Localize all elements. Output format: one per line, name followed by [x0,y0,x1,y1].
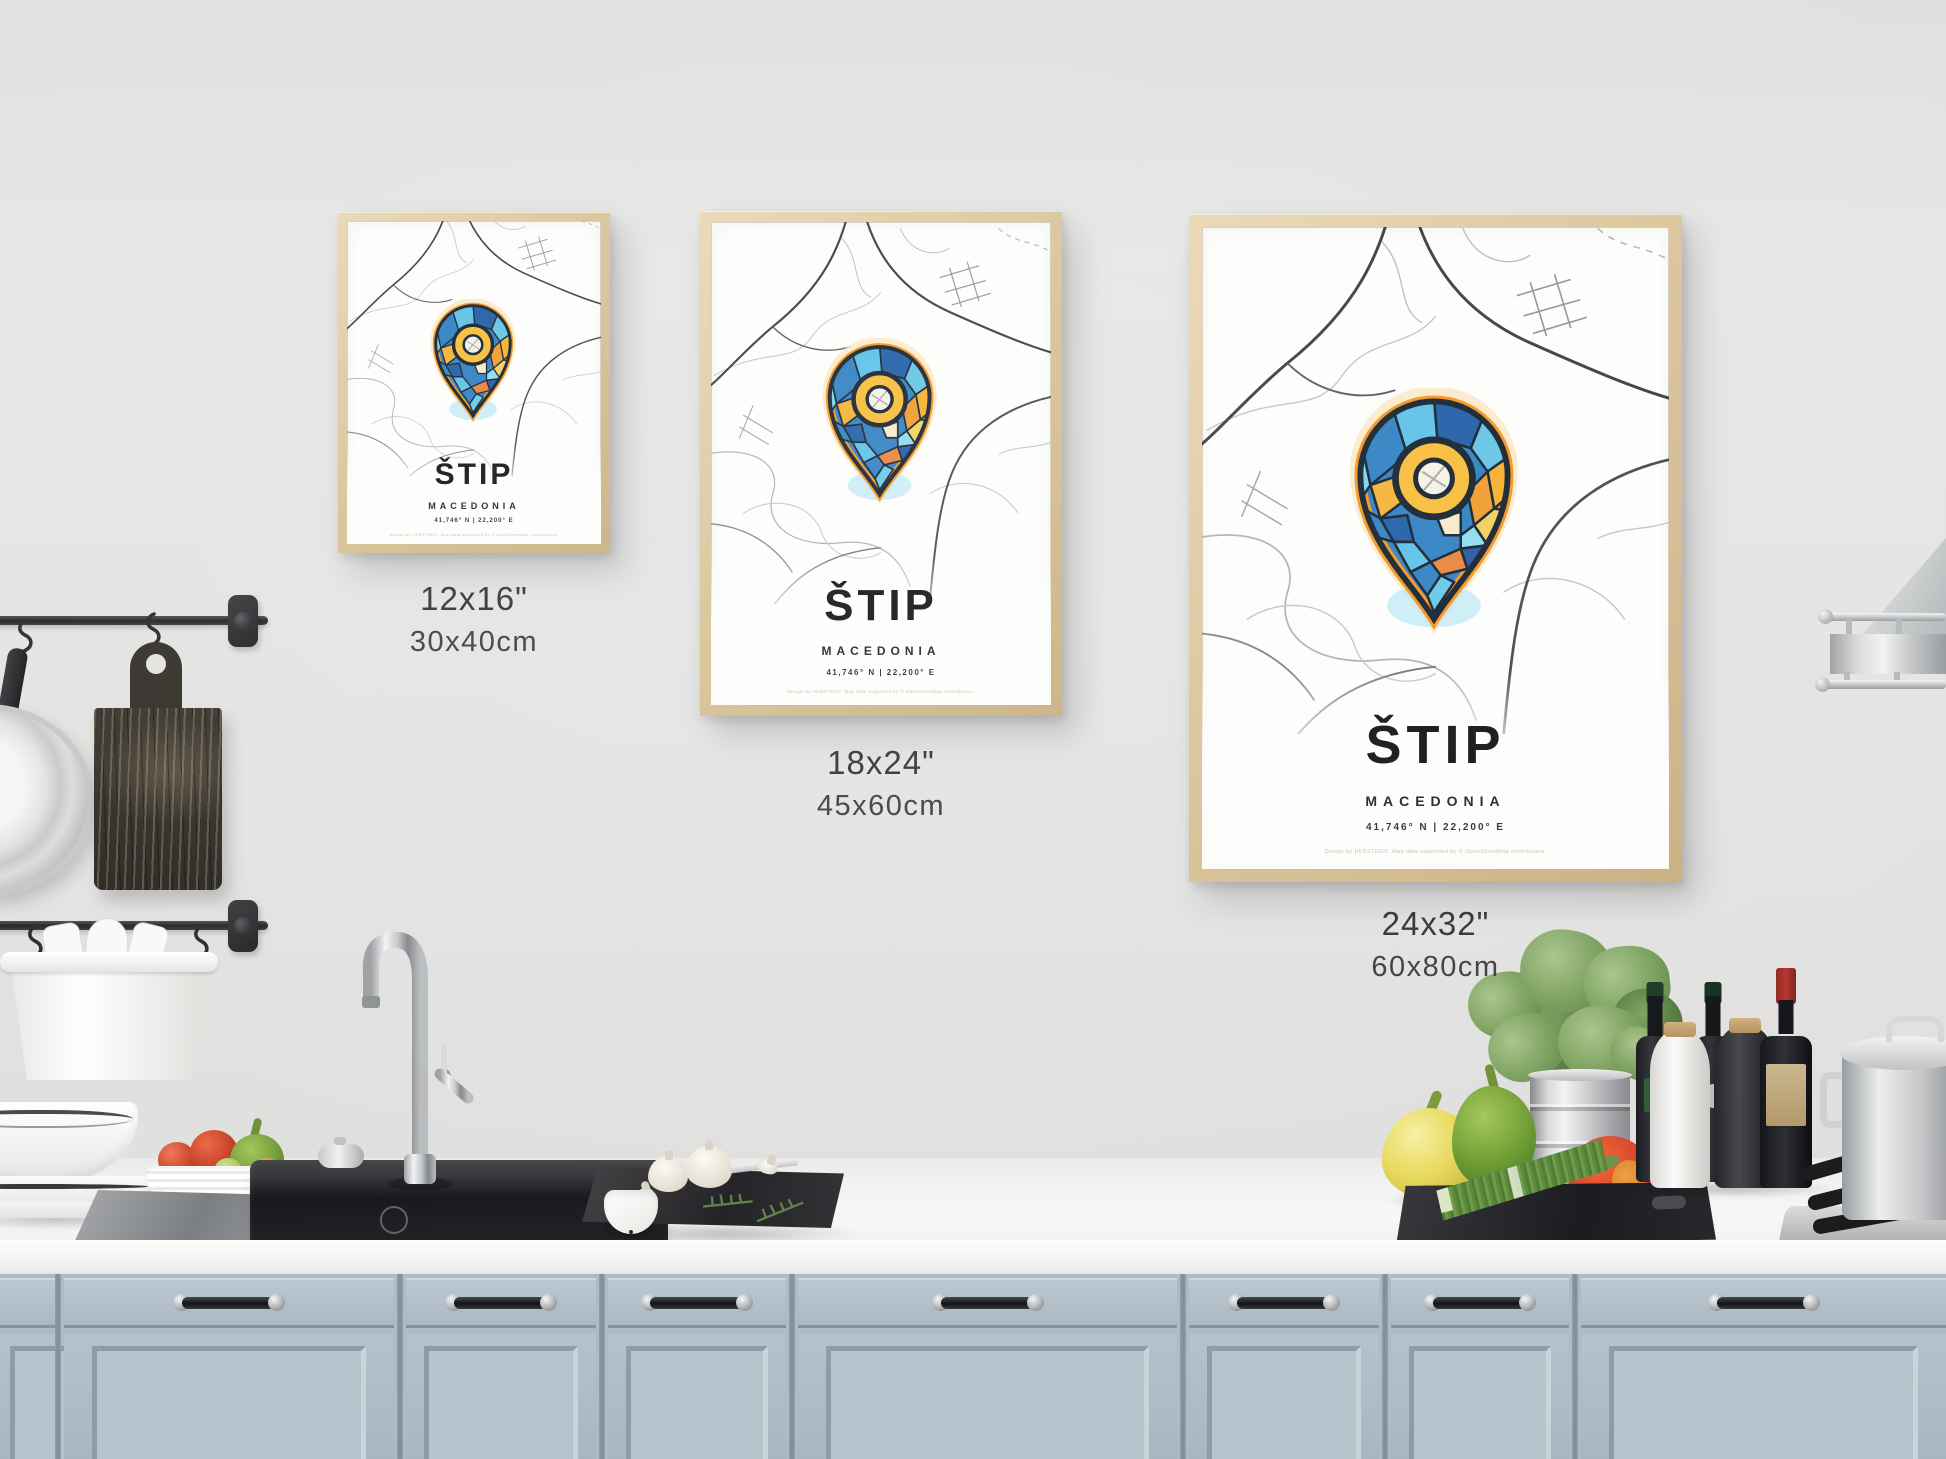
poster-credit: Design by HEBSTREIT. Map data supported … [711,689,1051,694]
cabinet-drawer [1391,1278,1569,1328]
poster-caption: ŠTIP MACEDONIA 41,746° N | 22,200° E Des… [1202,714,1669,855]
map-pin-icon [812,338,948,508]
peppercorns [598,1228,602,1232]
size-inches: 12x16" [338,580,610,618]
cabinet-drawer [798,1278,1177,1328]
drawer-handle [641,1293,753,1313]
size-label-18x24: 18x24" 45x60cm [700,744,1062,823]
cabinet-door [1391,1334,1569,1459]
cabinet-door [1189,1334,1379,1459]
frying-pan [0,704,94,896]
garlic-bulb [686,1146,732,1188]
poster-frame-18x24: ŠTIP MACEDONIA 41,746° N | 22,200° E Des… [700,211,1062,716]
size-label-12x16: 12x16" 30x40cm [338,580,610,659]
grinder-cork-cap [1729,1018,1761,1033]
drawer-handle [932,1293,1044,1313]
wine-label [1766,1064,1806,1126]
cabinet-door [406,1334,596,1459]
poster-paper: ŠTIP MACEDONIA 41,746° N | 22,200° E Des… [347,221,601,544]
cabinet-unit [64,1274,394,1459]
size-cm: 60x80cm [1189,951,1682,984]
cabinet-drawer [0,1278,55,1328]
cabinet-drawer [64,1278,394,1328]
cabinet-unit [1581,1274,1946,1459]
cabinet-drawer [608,1278,786,1328]
drawer-handle [1424,1293,1536,1313]
cabinet-door [608,1334,786,1459]
cabinet-drawer [1189,1278,1379,1328]
board-handle-slot [1652,1195,1687,1210]
poster-city-title: ŠTIP [711,581,1051,631]
size-inches: 24x32" [1189,905,1682,943]
range-hood-rail-ball [1815,677,1830,692]
poster-city-title: ŠTIP [347,458,601,492]
cabinet-drawer [1581,1278,1946,1328]
cabinet-unit [608,1274,786,1459]
drawer-handle [1708,1293,1820,1313]
sink-logo-badge [380,1206,408,1234]
size-cm: 30x40cm [338,626,610,659]
cabinet-door [798,1334,1177,1459]
garlic-bulb [648,1156,688,1192]
cabinet-unit [0,1274,55,1459]
rail-mount [228,595,258,647]
utensil-bucket [4,962,214,1080]
poster-caption: ŠTIP MACEDONIA 41,746° N | 22,200° E Des… [347,458,601,537]
cabinet-unit [406,1274,596,1459]
cabinet-unit [1189,1274,1379,1459]
poster-credit: Design by HEBSTREIT. Map data supported … [347,532,601,537]
poster-credit: Design by HEBSTREIT. Map data supported … [1202,849,1669,855]
size-inches: 18x24" [700,744,1062,782]
poster-country: MACEDONIA [711,644,1051,658]
drawer-handle [173,1293,285,1313]
rail-mount [228,900,258,952]
poster-coordinates: 41,746° N | 22,200° E [347,518,601,524]
cabinet-door [0,1334,55,1459]
drawer-handle [1228,1293,1340,1313]
base-cabinets [0,1274,1946,1459]
poster-frame-12x16: ŠTIP MACEDONIA 41,746° N | 22,200° E Des… [338,212,610,553]
poster-paper: ŠTIP MACEDONIA 41,746° N | 22,200° E Des… [711,222,1051,705]
wine-bottle [1760,968,1812,1188]
poster-coordinates: 41,746° N | 22,200° E [711,668,1051,677]
cutting-board-handle [130,642,182,716]
poster-frame-24x32: ŠTIP MACEDONIA 41,746° N | 22,200° E Des… [1189,214,1682,882]
size-cm: 45x60cm [700,790,1062,823]
poster-country: MACEDONIA [1202,793,1669,809]
faucet [356,916,488,1192]
range-hood-body [1830,634,1946,674]
utensil-bucket-rim [0,952,218,972]
cabinet-door [64,1334,394,1459]
poster-paper: ŠTIP MACEDONIA 41,746° N | 22,200° E Des… [1202,227,1669,869]
cabinet-unit [798,1274,1177,1459]
kitchen-scene: ŠTIP MACEDONIA 41,746° N | 22,200° E Des… [0,0,1946,1459]
poster-city-title: ŠTIP [1202,714,1669,776]
drawer-handle [445,1293,557,1313]
poster-coordinates: 41,746° N | 22,200° E [1202,822,1669,833]
pot-lid-handle [1886,1016,1944,1042]
stock-pot [1842,1054,1946,1220]
range-hood-rail-top [1824,613,1946,621]
range-hood-rail-bottom [1822,680,1946,689]
size-label-24x32: 24x32" 60x80cm [1189,905,1682,984]
map-pin-icon [422,299,524,426]
range-hood-rail-ball [1818,609,1833,624]
cabinet-drawer [406,1278,596,1328]
map-pin-icon [1333,388,1534,639]
countertop-edge [0,1240,1946,1274]
grinder-cork-cap [1664,1022,1696,1037]
white-spice-grinder [1650,1030,1710,1188]
poster-caption: ŠTIP MACEDONIA 41,746° N | 22,200° E Des… [711,581,1051,694]
cabinet-door [1581,1334,1946,1459]
cutting-board [94,708,222,890]
cabinet-unit [1391,1274,1569,1459]
poster-country: MACEDONIA [347,501,601,511]
